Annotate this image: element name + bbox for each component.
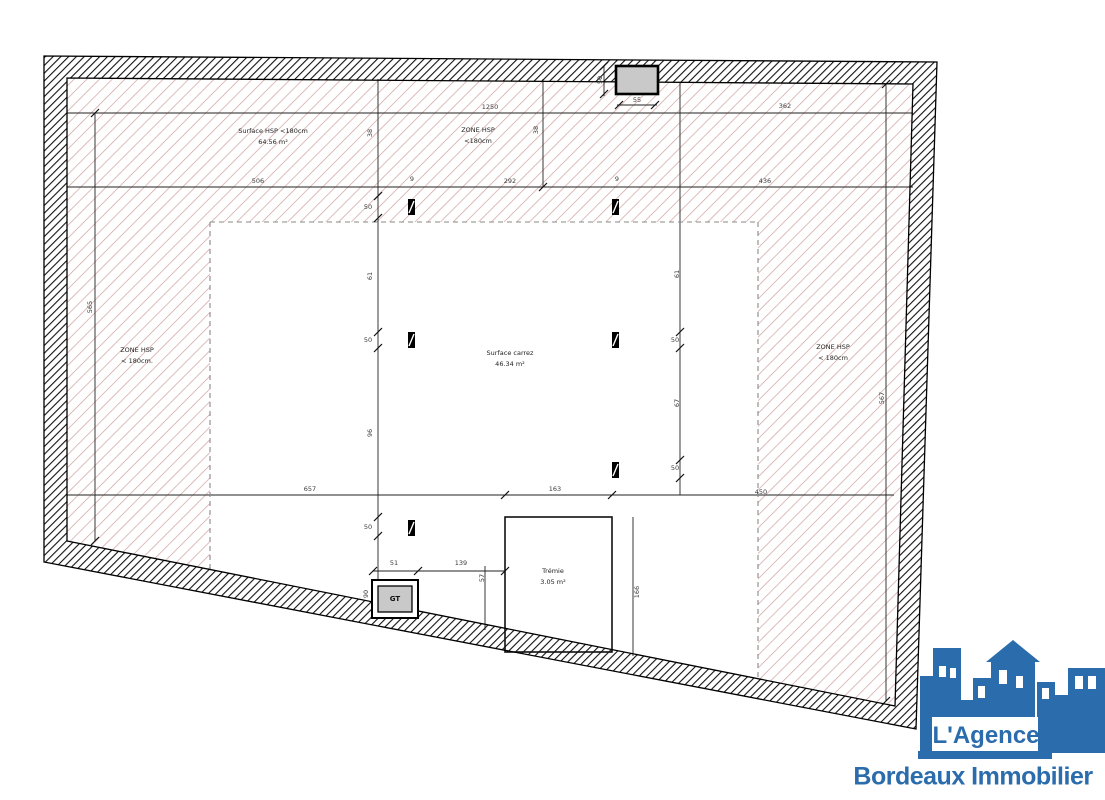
logo-underline-bar — [918, 751, 1052, 759]
logo-text-panel — [932, 717, 1038, 752]
gt-duct-box — [372, 580, 418, 618]
floor-plan-drawing — [0, 0, 1105, 800]
skylight-box — [616, 66, 658, 94]
agency-logo-skyline — [918, 640, 1105, 759]
floor-plan-page: Surface HSP <180cm 64.56 m² ZONE HSP <18… — [0, 0, 1105, 800]
